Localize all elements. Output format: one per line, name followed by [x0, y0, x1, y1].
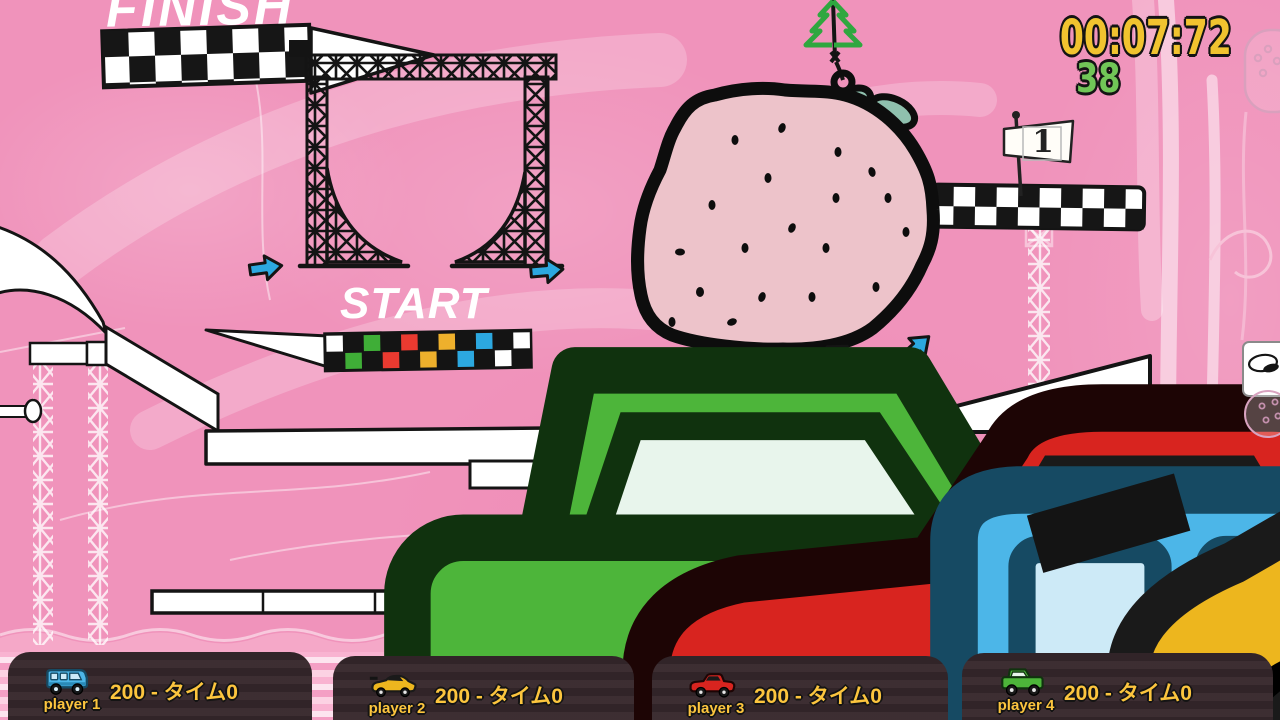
game-viewport[interactable]: FINISH START 00:07:72 38 1 player 1 200 … — [0, 0, 1280, 720]
player-panel-1: player 1 200 - タイム0 — [8, 652, 312, 720]
lap-counter: 38 — [1076, 56, 1121, 102]
player-score: 200 - タイム0 — [754, 680, 882, 710]
player-score: 200 - タイム0 — [1064, 677, 1192, 707]
player-panel-2: player 2 200 - タイム0 — [333, 656, 634, 720]
player-panel-4: player 4 200 - タイム0 — [962, 653, 1273, 720]
background-paint — [0, 0, 1280, 720]
start-label: START — [340, 279, 488, 329]
blue-van-icon — [44, 665, 92, 696]
green-jeep-icon — [998, 666, 1046, 697]
flag-rank-number: 1 — [1026, 124, 1060, 160]
player-score: 200 - タイム0 — [110, 676, 238, 706]
red-car-icon — [688, 669, 736, 700]
finish-label: FINISH — [105, 0, 294, 40]
player-score: 200 - タイム0 — [435, 680, 563, 710]
yellow-sportscar-icon — [369, 669, 417, 700]
player-panel-3: player 3 200 - タイム0 — [652, 656, 948, 720]
